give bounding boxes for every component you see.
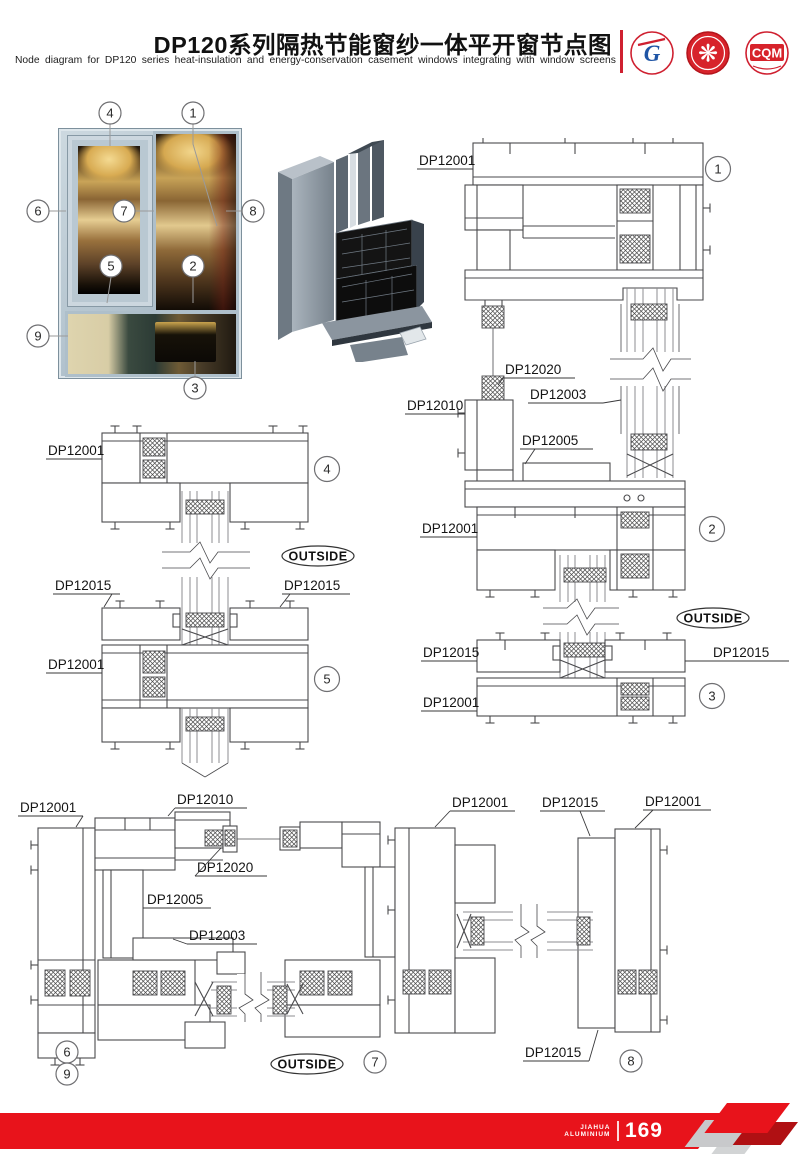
part-label: DP12005 bbox=[147, 892, 203, 907]
part-label: DP12003 bbox=[189, 928, 245, 943]
part-label: DP12005 bbox=[522, 433, 578, 448]
glass-unit-vertical-5 bbox=[182, 708, 228, 777]
section-marker-8: 8 bbox=[620, 1050, 642, 1072]
svg-text:7: 7 bbox=[371, 1055, 378, 1070]
callout-6: 6 bbox=[27, 200, 49, 222]
brand-name: JIAHUA ALUMINIUM bbox=[564, 1124, 610, 1139]
svg-text:9: 9 bbox=[63, 1067, 70, 1082]
part-label: DP12015 bbox=[542, 795, 598, 810]
profile-frame-2 bbox=[477, 507, 685, 597]
svg-text:3: 3 bbox=[708, 689, 715, 704]
section-drawing-1-2-3: DP12001 DP12020 DP12003 DP12010 DP12005 … bbox=[405, 138, 797, 753]
callout-8: 8 bbox=[242, 200, 264, 222]
svg-text:2: 2 bbox=[708, 522, 715, 537]
section-marker-4: 4 bbox=[315, 457, 340, 482]
section-drawing-6-9-7-8: DP12001 DP12010 DP12020 DP12005 DP12003 … bbox=[15, 790, 795, 1092]
profile-top-rail bbox=[473, 138, 703, 185]
callout-9: 9 bbox=[27, 325, 49, 347]
section-marker-5: 5 bbox=[315, 667, 340, 692]
profile-jamb-8-right bbox=[578, 829, 667, 1032]
part-label: DP12001 bbox=[20, 800, 76, 815]
callout-5: 5 bbox=[100, 255, 122, 277]
section-marker-6: 6 bbox=[56, 1041, 78, 1063]
quality-seal-icon: ❋ bbox=[685, 30, 731, 76]
svg-text:1: 1 bbox=[714, 162, 721, 177]
part-label: DP12015 bbox=[284, 578, 340, 593]
outside-tag: OUTSIDE bbox=[677, 608, 749, 628]
page-number: 169 bbox=[625, 1119, 663, 1143]
svg-text:4: 4 bbox=[323, 462, 330, 477]
profile-jamb-right bbox=[680, 185, 710, 270]
part-label: DP12010 bbox=[177, 792, 233, 807]
cqm-text: CQM bbox=[752, 46, 782, 61]
glass-unit-horizontal-8 bbox=[457, 904, 593, 958]
footer-divider bbox=[617, 1121, 619, 1141]
part-label: DP12001 bbox=[48, 657, 104, 672]
part-label: DP12001 bbox=[645, 794, 701, 809]
svg-text:6: 6 bbox=[34, 204, 41, 219]
callout-7: 7 bbox=[113, 200, 135, 222]
outside-tag: OUTSIDE bbox=[282, 546, 354, 566]
profile-frame-5 bbox=[102, 645, 308, 749]
profile-mullion bbox=[617, 185, 653, 270]
section-marker-3: 3 bbox=[700, 684, 725, 709]
svg-text:OUTSIDE: OUTSIDE bbox=[288, 550, 347, 564]
section-marker-9: 9 bbox=[56, 1063, 78, 1085]
svg-text:OUTSIDE: OUTSIDE bbox=[683, 612, 742, 626]
callout-4: 4 bbox=[99, 102, 121, 124]
callout-2: 2 bbox=[182, 255, 204, 277]
svg-text:3: 3 bbox=[191, 381, 198, 396]
glass-unit-vertical-1 bbox=[607, 288, 695, 478]
part-label: DP12010 bbox=[407, 398, 463, 413]
svg-text:4: 4 bbox=[106, 106, 113, 121]
svg-text:7: 7 bbox=[120, 204, 127, 219]
outside-tag: OUTSIDE bbox=[271, 1054, 343, 1074]
profile-sash-7 bbox=[280, 822, 395, 1037]
footer-band: JIAHUA ALUMINIUM 169 bbox=[0, 1113, 725, 1149]
svg-text:6: 6 bbox=[63, 1045, 70, 1060]
part-label: DP12003 bbox=[530, 387, 586, 402]
part-label: DP12020 bbox=[197, 860, 253, 875]
part-label: DP12015 bbox=[525, 1045, 581, 1060]
profile-jamb-6 bbox=[31, 828, 95, 1033]
svg-text:❋: ❋ bbox=[698, 41, 718, 68]
part-label: DP12001 bbox=[423, 695, 479, 710]
profile-screen-chain bbox=[458, 300, 513, 486]
part-label: DP12015 bbox=[713, 645, 769, 660]
svg-text:9: 9 bbox=[34, 329, 41, 344]
section-drawing-4-5: DP12001 DP12015 DP12015 DP12001 4 5 OUTS… bbox=[40, 425, 395, 785]
svg-text:OUTSIDE: OUTSIDE bbox=[277, 1058, 336, 1072]
certification-logo-icon: G bbox=[629, 30, 675, 76]
callout-1: 1 bbox=[182, 102, 204, 124]
profile-frame-3 bbox=[477, 678, 685, 723]
svg-text:5: 5 bbox=[107, 259, 114, 274]
photo-callouts: 4 1 6 7 8 5 2 9 3 bbox=[20, 100, 270, 400]
svg-text:2: 2 bbox=[189, 259, 196, 274]
svg-text:1: 1 bbox=[189, 106, 196, 121]
profile-sash-bottom bbox=[465, 270, 703, 300]
header-divider bbox=[620, 30, 623, 73]
cqm-logo-icon: CQM bbox=[741, 30, 793, 76]
part-label: DP12015 bbox=[55, 578, 111, 593]
callout-3: 3 bbox=[184, 377, 206, 399]
profile-sash-left bbox=[465, 185, 615, 270]
svg-text:5: 5 bbox=[323, 672, 330, 687]
page-subtitle: Node diagram for DP120 series heat-insul… bbox=[15, 55, 615, 66]
section-marker-2: 2 bbox=[700, 517, 725, 542]
section-marker-7: 7 bbox=[364, 1051, 386, 1073]
part-label: DP12001 bbox=[48, 443, 104, 458]
svg-text:8: 8 bbox=[627, 1054, 634, 1069]
svg-text:8: 8 bbox=[249, 204, 256, 219]
logo-letter: G bbox=[644, 41, 661, 66]
part-label: DP12001 bbox=[422, 521, 478, 536]
part-label: DP12020 bbox=[505, 362, 561, 377]
part-label: DP12001 bbox=[419, 153, 475, 168]
catalog-page: DP120系列隔热节能窗纱一体平开窗节点图 Node diagram for D… bbox=[0, 0, 800, 1167]
part-label: DP12001 bbox=[452, 795, 508, 810]
section-marker-1: 1 bbox=[706, 157, 731, 182]
part-label: DP12015 bbox=[423, 645, 479, 660]
